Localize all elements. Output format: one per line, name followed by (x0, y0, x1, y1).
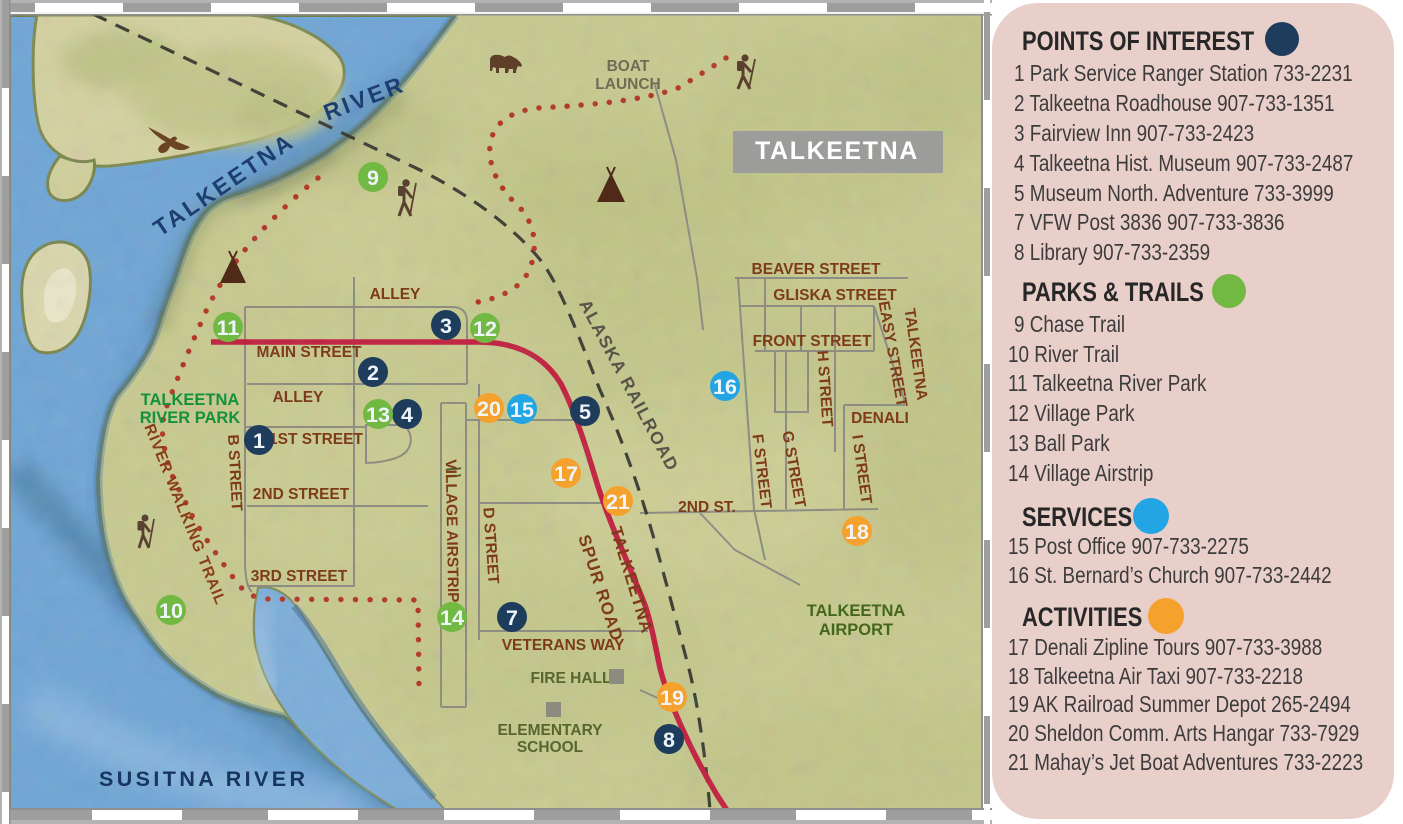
svg-text:2ND ST.: 2ND ST. (678, 499, 736, 516)
svg-text:TALKEETNA: TALKEETNA (807, 602, 906, 620)
svg-text:9: 9 (367, 166, 379, 190)
svg-text:ALLEY: ALLEY (273, 389, 324, 406)
svg-text:MAIN STREET: MAIN STREET (256, 344, 362, 361)
svg-text:10: 10 (159, 599, 183, 623)
svg-text:1ST STREET: 1ST STREET (269, 431, 363, 448)
svg-text:DENALI: DENALI (851, 410, 909, 427)
svg-text:2: 2 (367, 361, 379, 385)
svg-text:FIRE HALL: FIRE HALL (531, 670, 612, 687)
svg-text:14: 14 (440, 606, 464, 630)
svg-text:BEAVER STREET: BEAVER STREET (752, 261, 881, 278)
svg-text:19: 19 (660, 686, 684, 710)
svg-text:TALKEETNA: TALKEETNA (755, 137, 919, 165)
svg-text:7: 7 (506, 606, 518, 630)
svg-text:16: 16 (713, 375, 737, 399)
svg-text:17: 17 (554, 462, 578, 486)
svg-text:3: 3 (440, 314, 452, 338)
svg-text:SUSITNA RIVER: SUSITNA RIVER (99, 767, 308, 791)
svg-text:LAUNCH: LAUNCH (595, 76, 660, 93)
svg-text:VILLAGE AIRSTRIP: VILLAGE AIRSTRIP (442, 459, 461, 603)
svg-text:FRONT STREET: FRONT STREET (753, 333, 872, 350)
svg-text:BOAT: BOAT (607, 58, 650, 75)
svg-text:TALKEETNA: TALKEETNA (141, 391, 240, 409)
svg-text:2ND STREET: 2ND STREET (253, 486, 350, 503)
svg-text:11: 11 (217, 316, 240, 340)
svg-text:20: 20 (477, 397, 501, 421)
svg-text:5: 5 (579, 400, 591, 424)
svg-text:15: 15 (510, 398, 534, 422)
svg-text:21: 21 (606, 490, 630, 514)
svg-text:18: 18 (845, 520, 869, 544)
svg-text:ELEMENTARY: ELEMENTARY (497, 722, 603, 739)
svg-text:8: 8 (663, 728, 675, 752)
svg-text:3RD STREET: 3RD STREET (251, 568, 348, 585)
svg-text:AIRPORT: AIRPORT (819, 621, 893, 639)
svg-text:4: 4 (401, 403, 413, 427)
svg-text:13: 13 (366, 403, 390, 427)
svg-text:12: 12 (473, 317, 497, 341)
svg-text:VETERANS WAY: VETERANS WAY (502, 637, 625, 654)
svg-text:SCHOOL: SCHOOL (517, 739, 583, 756)
svg-text:1: 1 (253, 429, 265, 453)
svg-text:ALLEY: ALLEY (370, 286, 421, 303)
